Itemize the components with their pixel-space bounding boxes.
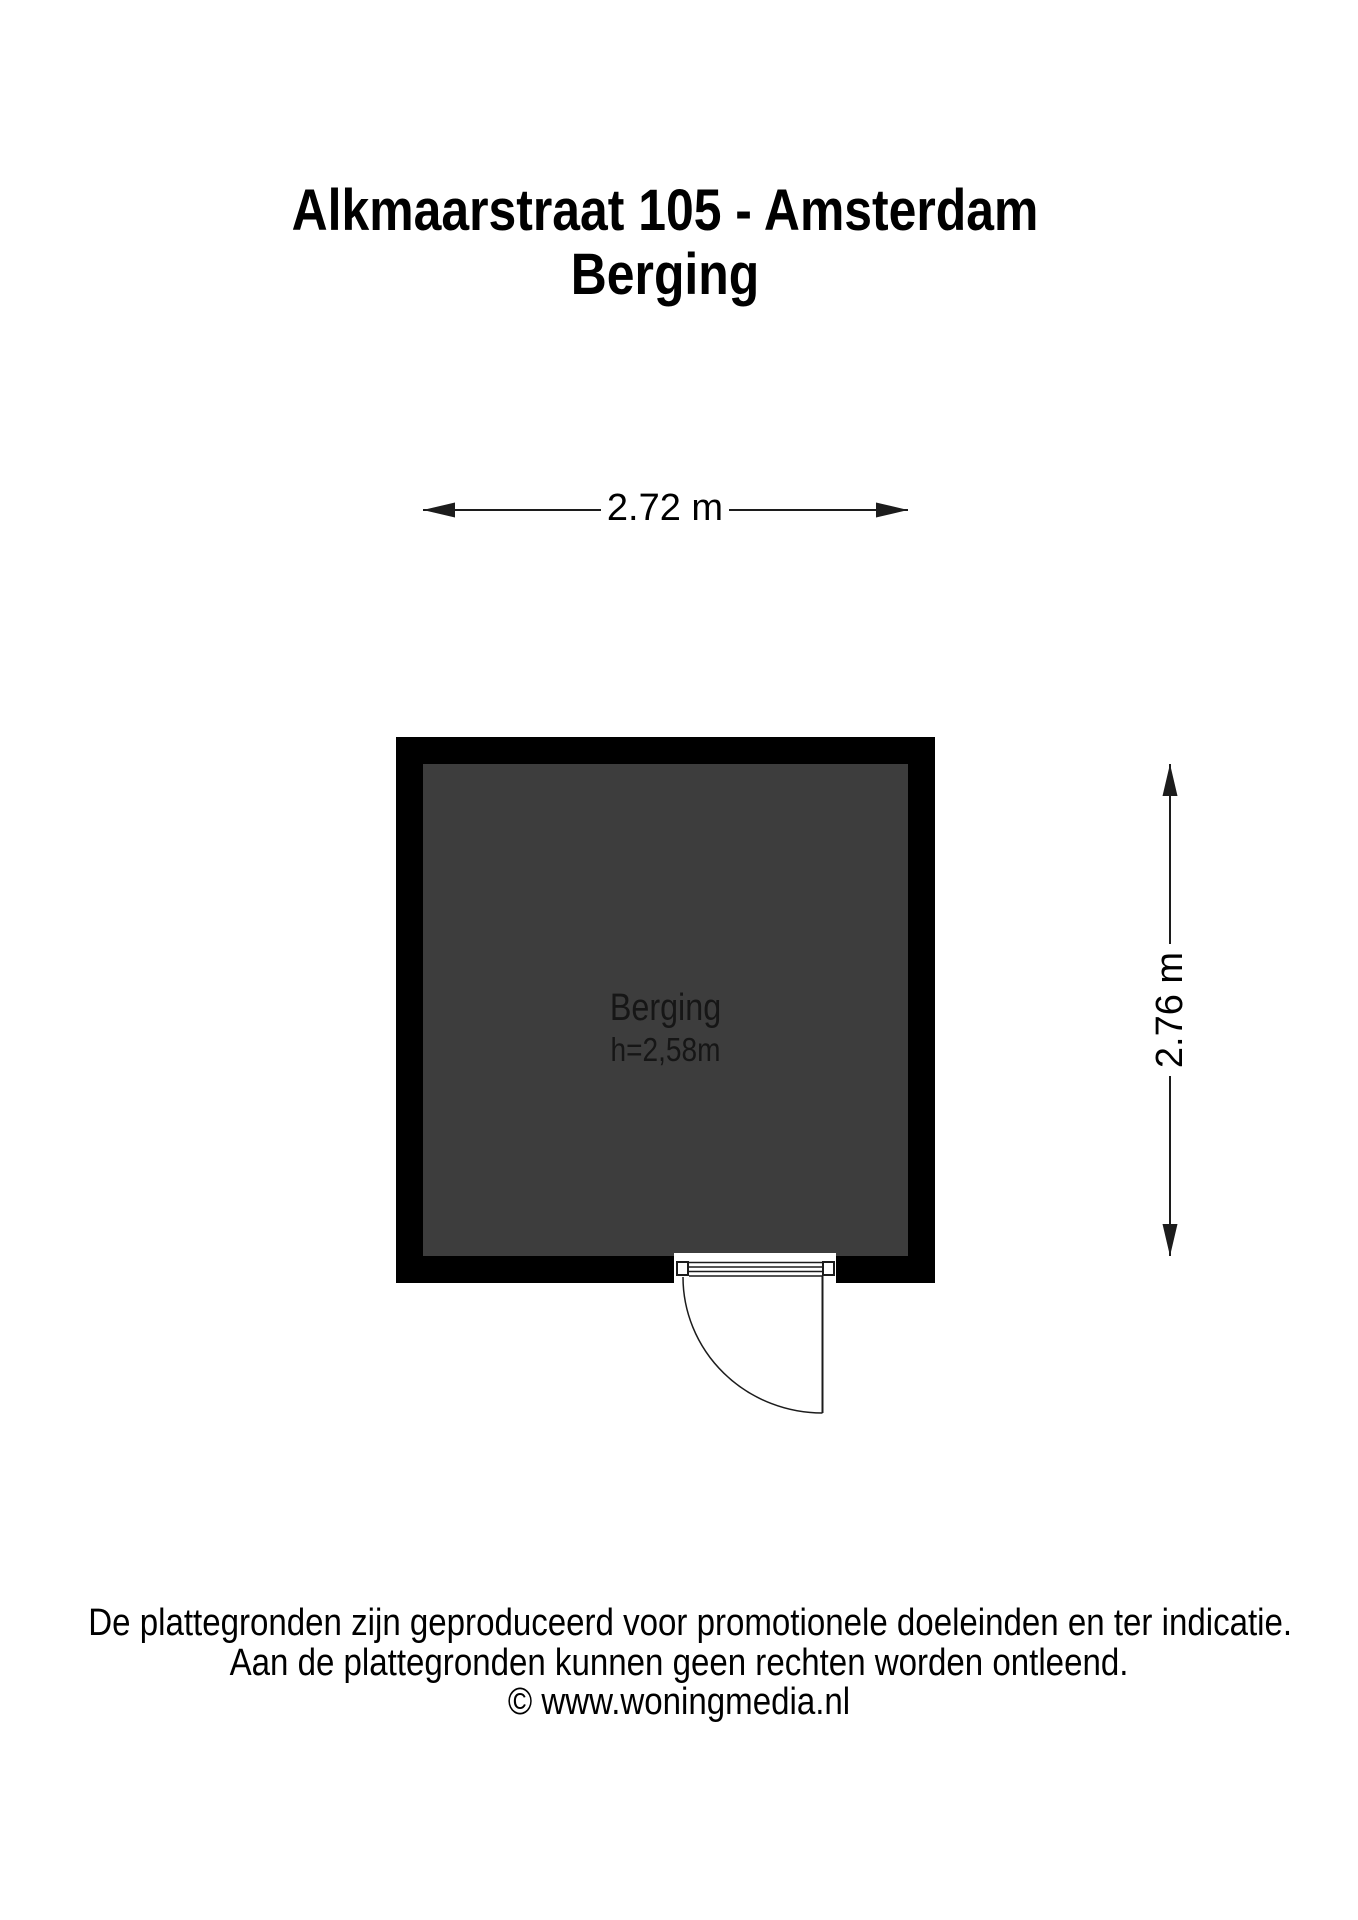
arrow-up-icon <box>1163 764 1178 796</box>
arrow-right-icon <box>876 503 908 518</box>
room-name-label: Berging <box>459 986 871 1030</box>
arrow-left-icon <box>423 503 455 518</box>
arrow-down-icon <box>1163 1224 1178 1256</box>
floorplan-page: Alkmaarstraat 105 - Amsterdam Berging Be… <box>0 0 1358 1920</box>
door-opening <box>674 1253 836 1283</box>
door-symbol <box>683 1276 823 1413</box>
disclaimer-line-2: Aan de plattegronden kunnen geen rechten… <box>88 1644 1269 1684</box>
title-address: Alkmaarstraat 105 - Amsterdam <box>97 179 1234 243</box>
copyright-line: © www.woningmedia.nl <box>88 1683 1269 1723</box>
width-dimension-label: 2.72 m <box>515 485 815 531</box>
door-jamb-left <box>676 1261 689 1276</box>
door-swing-arc-icon <box>683 1277 823 1413</box>
footer-disclaimer: De plattegronden zijn geproduceerd voor … <box>88 1604 1269 1723</box>
title-room-name: Berging <box>97 243 1234 307</box>
room-height-label: h=2,58m <box>459 1030 871 1070</box>
door-jamb-right <box>822 1261 835 1276</box>
height-dimension-label: 2.76 m <box>1147 860 1193 1160</box>
room-floor: Berging h=2,58m <box>423 764 908 1256</box>
floorplan-title: Alkmaarstraat 105 - Amsterdam Berging <box>97 179 1234 307</box>
disclaimer-line-1: De plattegronden zijn geproduceerd voor … <box>88 1604 1269 1644</box>
room-label: Berging h=2,58m <box>459 986 871 1070</box>
